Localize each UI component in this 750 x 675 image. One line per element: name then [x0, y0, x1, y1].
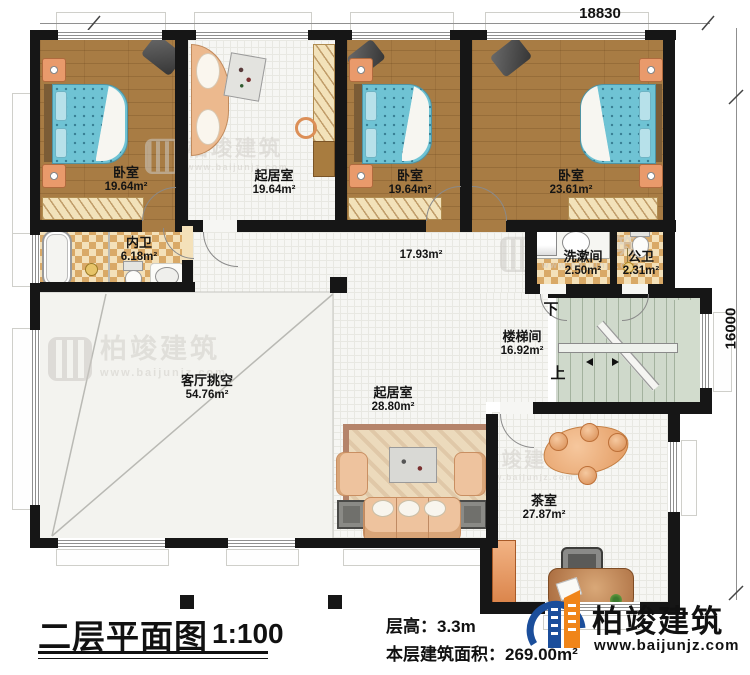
room-label-bedroom1: 卧室 19.64m² [105, 166, 148, 193]
nightstand [639, 58, 663, 82]
wall [460, 30, 472, 220]
room-area: 19.64m² [389, 184, 432, 197]
stair-direction-arrow [586, 358, 593, 366]
wardrobe [568, 197, 658, 220]
coffee-table [223, 52, 266, 102]
stair-direction: 下 [543, 301, 558, 318]
bed-pillow [639, 91, 651, 121]
room-label-sitting-bottom: 起居室 28.80m² [372, 386, 415, 413]
room-label-public-bath: 公卫 2.31m² [623, 250, 659, 277]
room-label-inner-bath: 内卫 6.18m² [121, 236, 157, 263]
side-table [458, 500, 487, 529]
room-label-hall: 17.93m² [400, 249, 443, 262]
room-name: 客厅挑空 [181, 373, 233, 388]
bed-pillow [365, 91, 377, 121]
window [30, 330, 40, 505]
stool [580, 423, 599, 442]
wall [30, 282, 195, 292]
stair-direction: 上 [550, 365, 565, 382]
brand-company: 柏竣建筑 [592, 596, 724, 641]
wardrobe [42, 197, 144, 220]
room-name: 卧室 [397, 168, 423, 183]
window [228, 538, 295, 548]
room-name: 楼梯间 [502, 329, 541, 344]
wall [30, 220, 676, 232]
room-label-tea-room: 茶室 27.87m² [523, 494, 566, 521]
room-label-living-void: 客厅挑空 54.76m² [181, 374, 233, 401]
bed [574, 84, 662, 162]
bed-headboard [44, 84, 52, 162]
window [668, 442, 680, 512]
room-label-bedroom3: 卧室 23.61m² [550, 169, 593, 196]
bed-headboard [354, 84, 362, 162]
side-table [337, 500, 366, 529]
drawing-scale: 1:100 [212, 618, 284, 650]
window [352, 30, 450, 40]
nightstand [639, 164, 663, 188]
room-area: 17.93m² [400, 249, 443, 262]
throw-pillow [424, 500, 446, 517]
bed-blanket [581, 85, 610, 161]
room-area: 54.76m² [181, 389, 233, 402]
room-name: 洗漱间 [563, 249, 602, 264]
room-name: 起居室 [254, 168, 293, 183]
bed-blanket [96, 85, 125, 161]
stair-handrail [558, 343, 678, 353]
door-opening [622, 284, 648, 294]
column-marker [180, 595, 194, 609]
window [487, 30, 645, 40]
armchair [336, 452, 368, 496]
throw-pillow [372, 500, 394, 517]
bed-pillow [365, 128, 377, 158]
wall [486, 414, 498, 548]
door-opening [472, 220, 506, 232]
stair-down-label: 下 [543, 302, 558, 319]
wall [610, 228, 617, 284]
bed [354, 84, 436, 162]
stair-up-label: 上 [550, 366, 565, 383]
bed-pillow [55, 91, 67, 121]
room-name: 卧室 [558, 168, 584, 183]
room-area: 19.64m² [105, 181, 148, 194]
room-area: 6.18m² [121, 251, 157, 264]
room-name: 起居室 [373, 385, 412, 400]
center-table [389, 447, 437, 483]
room-area: 16.92m² [501, 345, 544, 358]
title-underline-thin [38, 658, 268, 659]
brand-website: www.baijunjz.com [594, 637, 739, 654]
room-label-bedroom2: 卧室 19.64m² [389, 169, 432, 196]
throw-pillow [398, 500, 420, 517]
bathtub [42, 230, 72, 288]
stool [608, 433, 627, 452]
room-label-stairwell: 楼梯间 16.92m² [501, 330, 544, 357]
stool-ring [295, 117, 317, 139]
watermark-logo-icon [48, 337, 92, 381]
door-opening [426, 220, 460, 232]
floor-lamp [85, 263, 98, 276]
wall [175, 30, 188, 220]
room-area: 2.31m² [623, 265, 659, 278]
room-name: 茶室 [531, 493, 557, 508]
wall [335, 30, 347, 220]
door-opening [540, 284, 566, 294]
room-area: 19.64m² [253, 184, 296, 197]
nightstand [349, 164, 373, 188]
door-opening [500, 402, 533, 414]
stool [549, 432, 568, 451]
watermark-company: 柏竣建筑 [100, 334, 220, 364]
bed-pillow [639, 128, 651, 158]
window [700, 314, 712, 388]
stair-direction-arrow [612, 358, 619, 366]
brand-logo-icon [524, 586, 590, 662]
room-name: 内卫 [126, 235, 152, 250]
shelf [313, 141, 335, 177]
window [58, 538, 165, 548]
title-underline [38, 651, 268, 654]
nightstand [42, 58, 66, 82]
window [196, 30, 308, 40]
stool [578, 466, 597, 485]
room-name: 公卫 [628, 249, 654, 264]
bath-divider [108, 230, 110, 282]
wall [663, 30, 675, 292]
door-opening [203, 220, 237, 232]
bed-pillow [55, 128, 67, 158]
bed-blanket [402, 85, 429, 161]
bed [44, 84, 132, 162]
room-name: 卧室 [113, 165, 139, 180]
floor-height-note: 层高：3.3m [386, 612, 476, 637]
room-label-sitting-top: 起居室 19.64m² [253, 169, 296, 196]
structural-column [330, 277, 347, 293]
wall [532, 402, 712, 414]
room-area: 2.50m² [563, 265, 602, 278]
room-label-washroom: 洗漱间 2.50m² [563, 250, 602, 277]
column-marker [328, 595, 342, 609]
nightstand [349, 58, 373, 82]
armchair [454, 452, 486, 496]
washing-machine [535, 230, 557, 256]
room-area: 28.80m² [372, 401, 415, 414]
window [30, 235, 40, 283]
sofa-cushion [196, 53, 220, 89]
nightstand [42, 164, 66, 188]
room-area: 23.61m² [550, 184, 593, 197]
window [58, 30, 162, 40]
sofa-cushion [196, 109, 220, 145]
room-area: 27.87m² [523, 509, 566, 522]
floor-plan-page: 18830 16000 柏竣建筑 ww [0, 0, 750, 675]
